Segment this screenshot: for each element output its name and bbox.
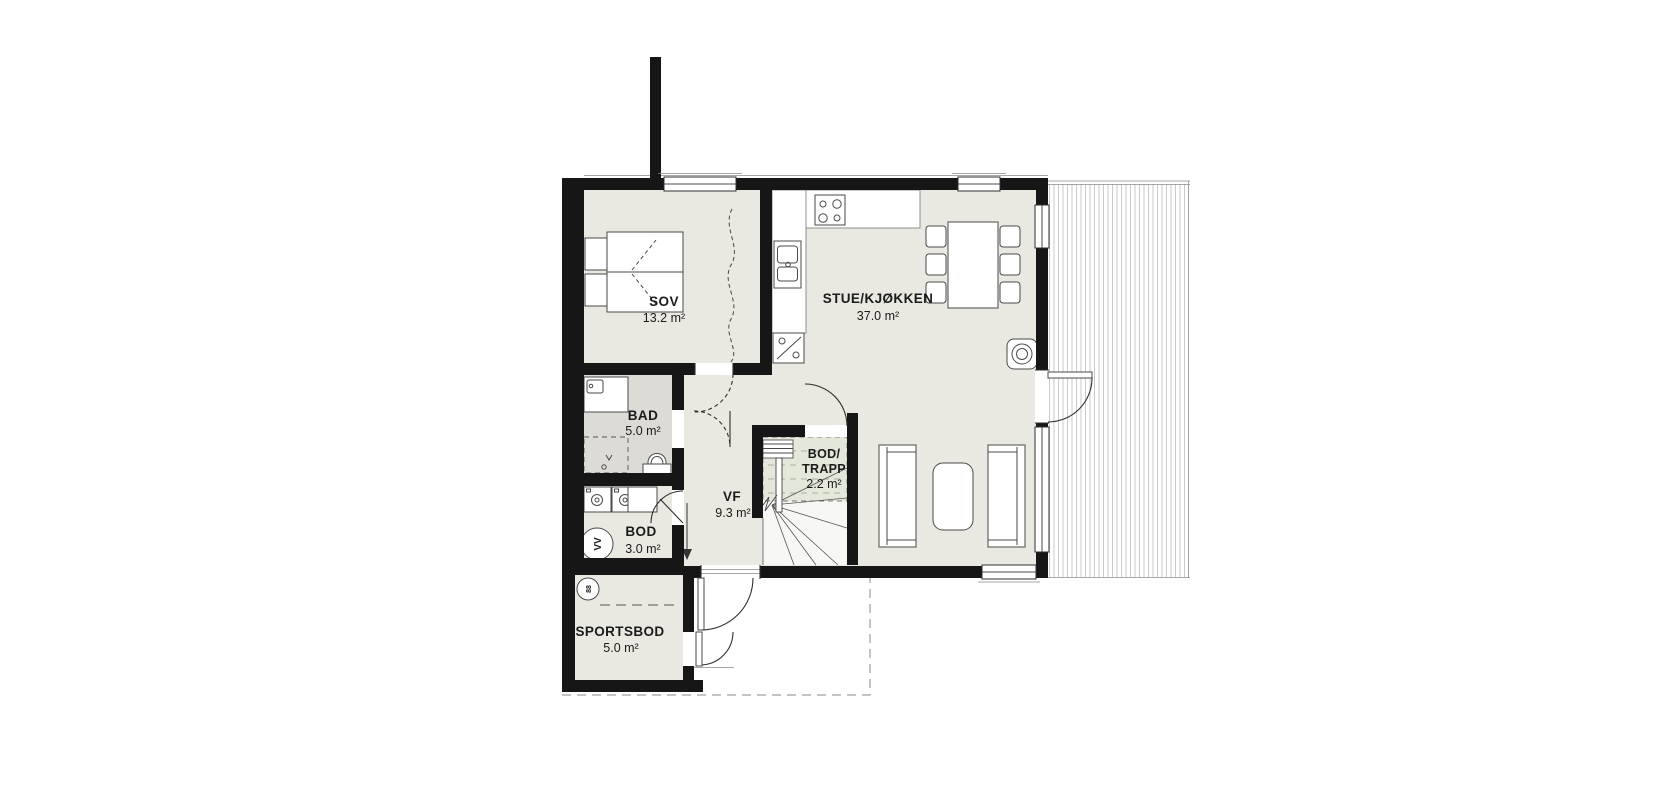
sportsbod-marker-icon: 88 xyxy=(577,578,599,600)
stair-upper-flight xyxy=(763,440,793,458)
window-living-east-lower xyxy=(1035,427,1049,552)
dining-table xyxy=(948,222,998,308)
sofa-right xyxy=(988,445,1025,547)
outdoor-deck xyxy=(1048,181,1190,578)
dishwasher-icon xyxy=(773,333,804,363)
floor-plan-drawing: VV 88 xyxy=(0,0,1670,800)
label-stue-area: 37.0 m² xyxy=(857,309,899,323)
stair-handrail xyxy=(776,458,782,512)
door-entrance xyxy=(698,565,760,630)
water-heater-icon: VV xyxy=(581,528,613,560)
label-sportsbod-area: 5.0 m² xyxy=(603,641,638,655)
party-wall-stub xyxy=(650,57,661,178)
washer-icon xyxy=(584,487,611,512)
label-sov-area: 13.2 m² xyxy=(643,311,685,325)
door-sportsbod xyxy=(683,632,734,668)
label-sov: SOV xyxy=(649,294,679,309)
label-bod-area: 3.0 m² xyxy=(625,542,660,556)
label-bod-trapp-area: 2.2 m² xyxy=(806,477,841,491)
label-stue: STUE/KJØKKEN xyxy=(823,291,934,306)
window-dining xyxy=(952,174,1006,192)
cabinet xyxy=(628,487,657,512)
svg-text:VV: VV xyxy=(593,537,604,551)
sofa-left xyxy=(879,445,916,547)
kitchen-sink-icon xyxy=(774,241,801,288)
label-vf-area: 9.3 m² xyxy=(715,506,750,520)
cooktop-icon xyxy=(815,195,845,225)
label-bod-trapp-2: TRAPP xyxy=(802,462,846,476)
coffee-table xyxy=(933,463,973,530)
floor-plan-page: VV 88 xyxy=(0,0,1670,800)
bedroom-wall xyxy=(760,190,772,375)
label-vf: VF xyxy=(723,489,741,504)
label-bad-area: 5.0 m² xyxy=(625,424,660,438)
vanity-sink-icon xyxy=(584,377,628,412)
svg-text:88: 88 xyxy=(586,585,593,593)
label-sportsbod: SPORTSBOD xyxy=(575,624,664,639)
window-living-east-upper xyxy=(1035,205,1049,248)
wood-stove-icon xyxy=(1007,339,1037,369)
window-bedroom xyxy=(658,174,742,192)
label-bod: BOD xyxy=(625,524,656,539)
window-living-south xyxy=(978,565,1040,582)
label-bod-trapp-1: BOD/ xyxy=(808,447,841,461)
label-bad: BAD xyxy=(628,408,658,423)
